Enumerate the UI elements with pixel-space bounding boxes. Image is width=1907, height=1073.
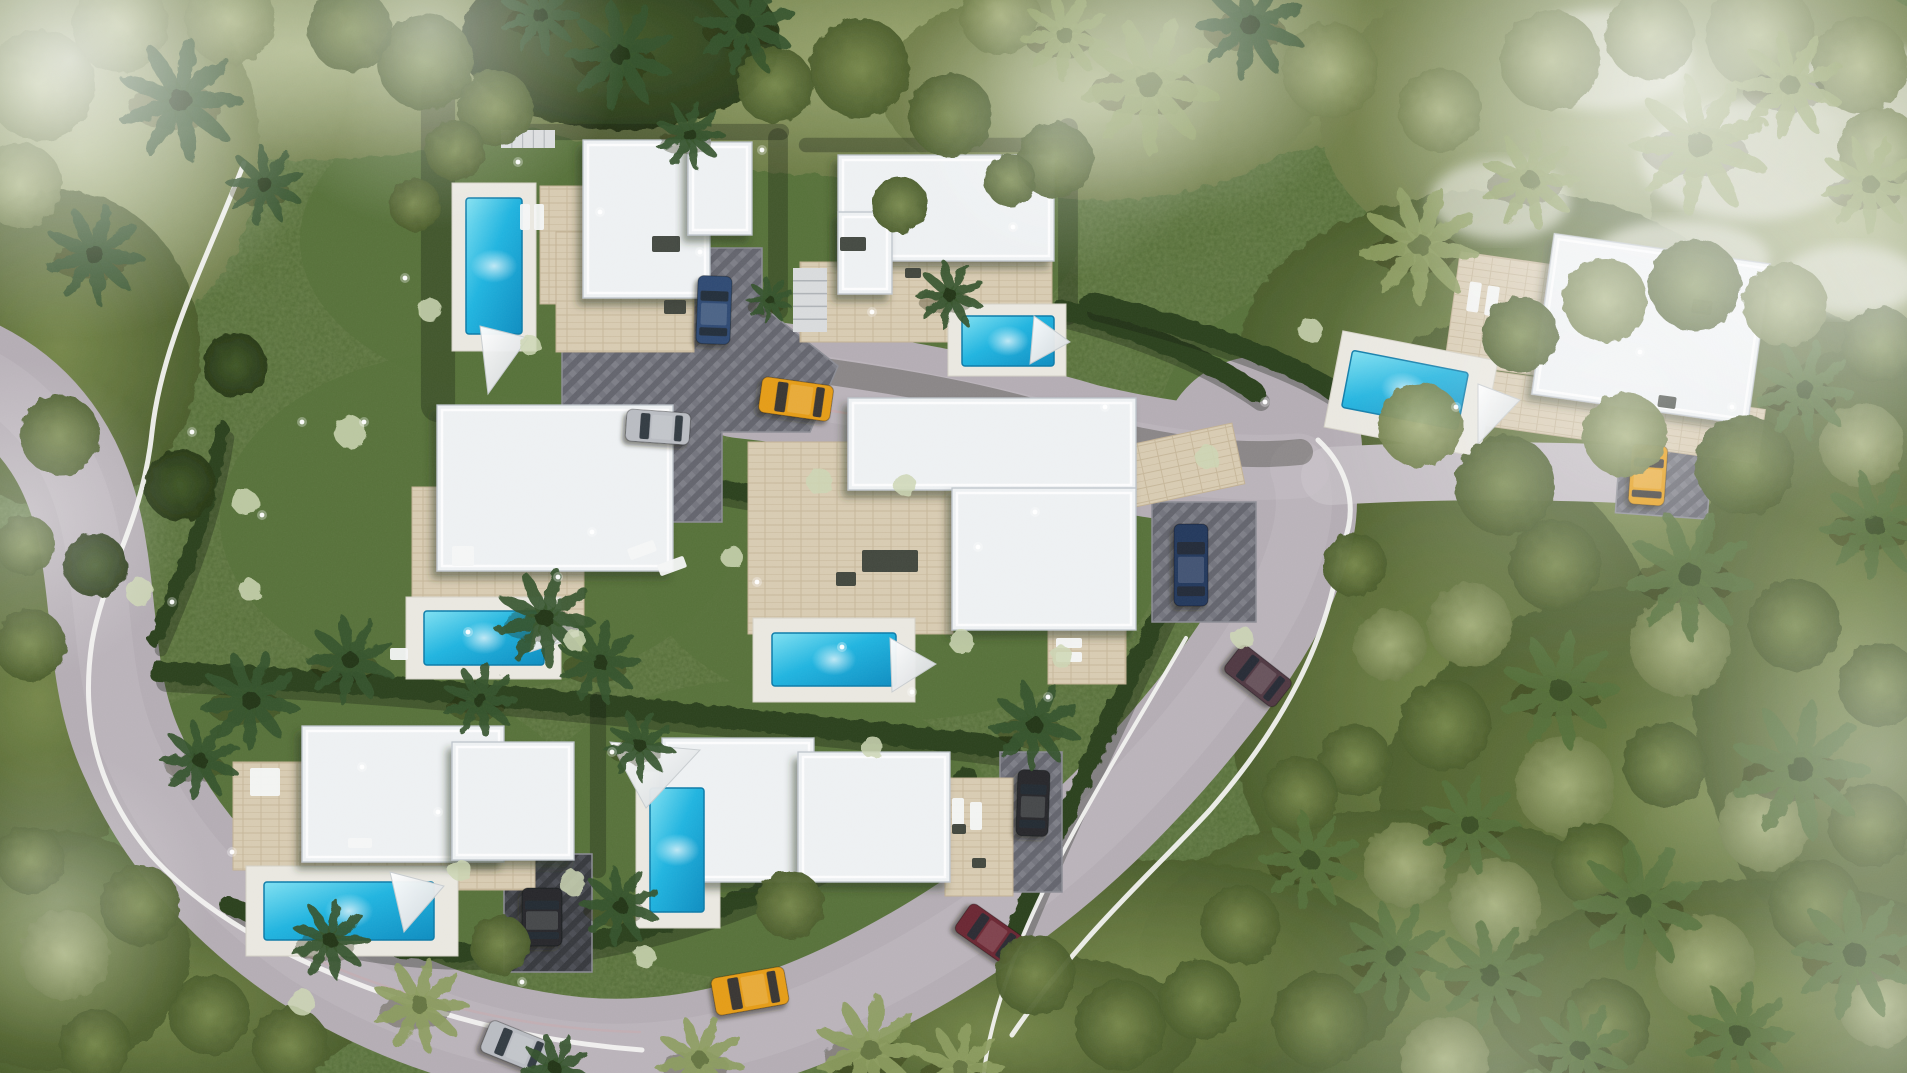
atmosphere-layer [0, 0, 1907, 1073]
film-grain [0, 0, 1907, 1073]
site-render-svg [0, 0, 1907, 1073]
aerial-site-plan-render [0, 0, 1907, 1073]
